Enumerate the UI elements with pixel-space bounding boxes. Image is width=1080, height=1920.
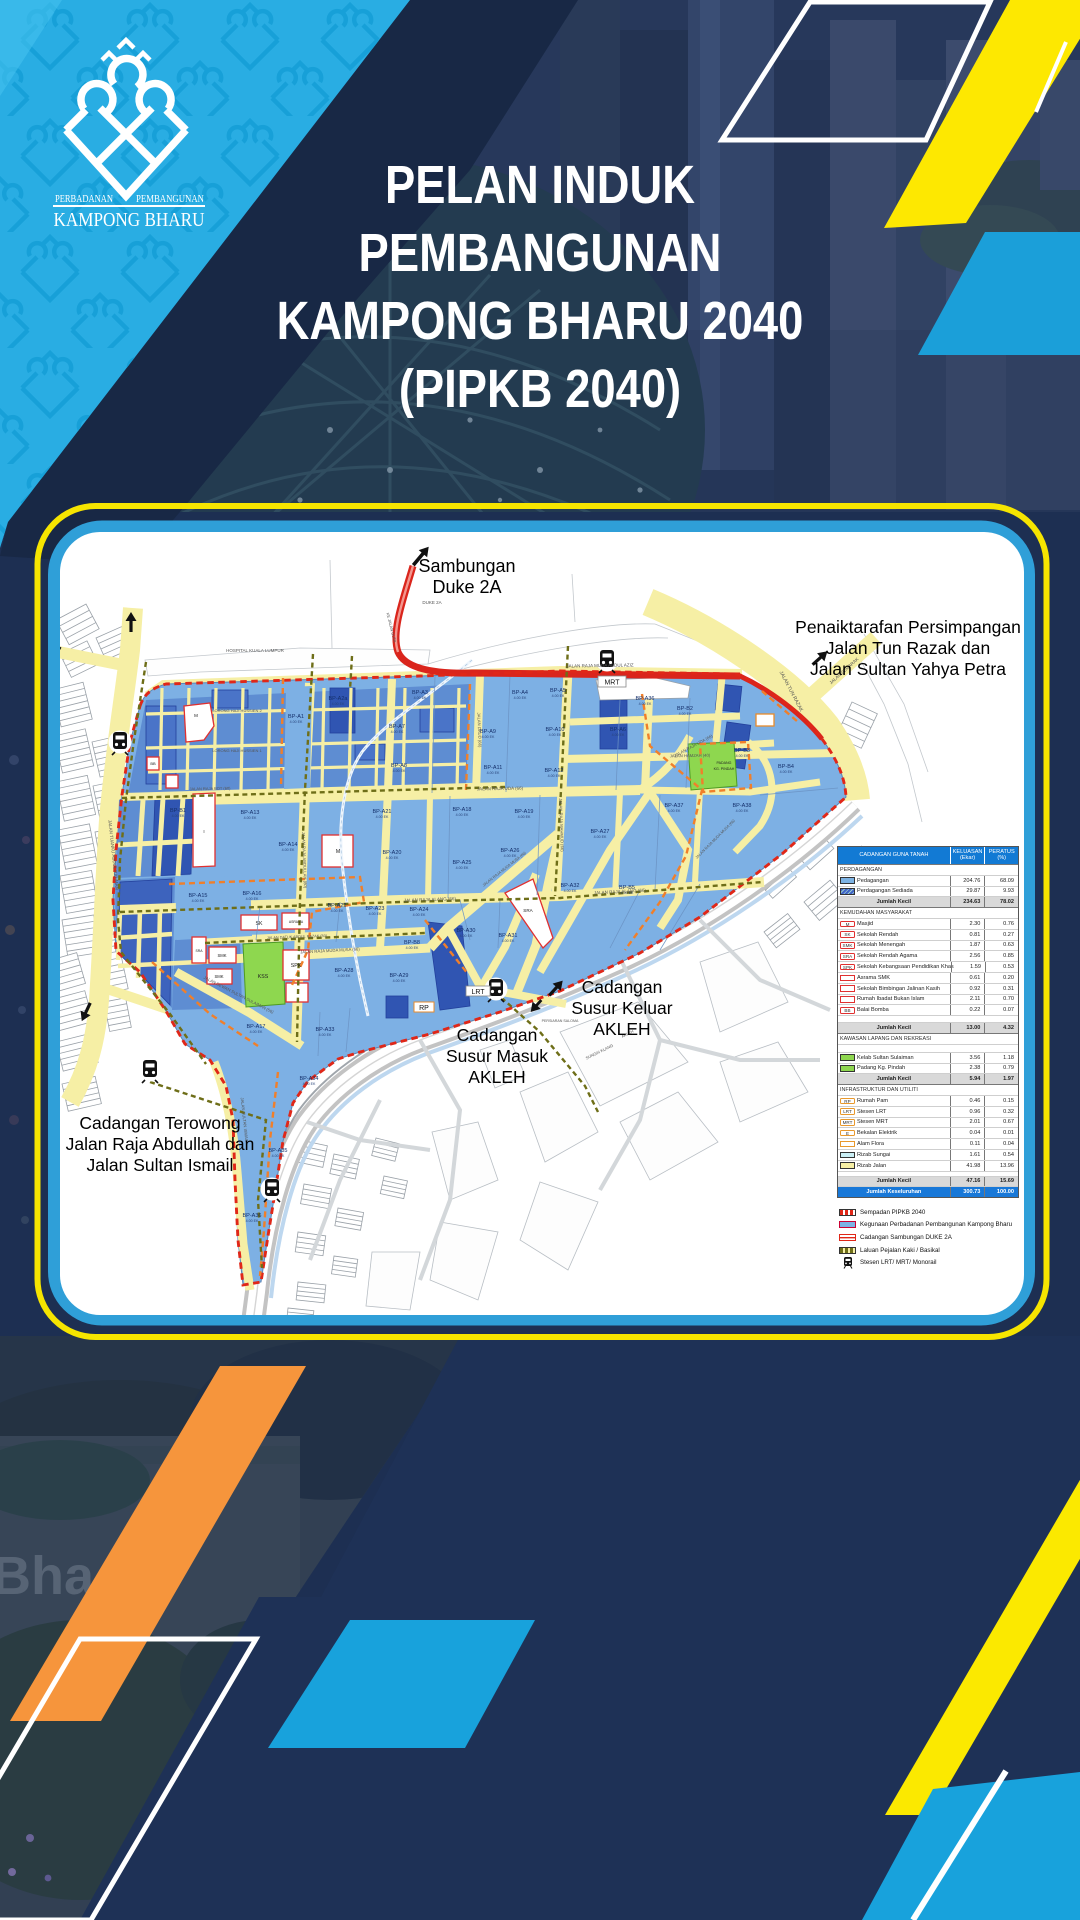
svg-text:4.00 EK: 4.00 EK [780, 770, 793, 774]
svg-text:M: M [194, 713, 198, 718]
svg-text:4.00 EK: 4.00 EK [393, 769, 406, 773]
svg-text:SK: SK [256, 921, 263, 927]
svg-text:4.00 EK: 4.00 EK [246, 897, 259, 901]
svg-text:4.00 EK: 4.00 EK [679, 712, 692, 716]
svg-text:4.00 EK: 4.00 EK [282, 848, 295, 852]
svg-text:JALAN RAJA BOT (60): JALAN RAJA BOT (60) [189, 786, 231, 792]
svg-text:4.00 EK: 4.00 EK [668, 809, 681, 813]
svg-text:4.00 EK: 4.00 EK [549, 733, 562, 737]
svg-text:4.00 EK: 4.00 EK [244, 816, 257, 820]
svg-text:4.00 EK: 4.00 EK [414, 696, 427, 700]
svg-text:LORONG HAJI HUSSIEN 1: LORONG HAJI HUSSIEN 1 [212, 748, 262, 753]
svg-text:4.00 EK: 4.00 EK [406, 946, 419, 950]
svg-text:4.00 EK: 4.00 EK [369, 912, 382, 916]
svg-text:4.00 EK: 4.00 EK [612, 733, 625, 737]
svg-text:4.00 EK: 4.00 EK [303, 1082, 316, 1086]
svg-text:4.00 EK: 4.00 EK [393, 979, 406, 983]
svg-text:4.00 EK: 4.00 EK [192, 899, 205, 903]
svg-text:DUKE 2A: DUKE 2A [422, 600, 441, 605]
svg-text:I: I [203, 829, 204, 834]
svg-text:JALAN HAMZAH (40): JALAN HAMZAH (40) [670, 753, 711, 759]
svg-text:KSS: KSS [258, 974, 269, 980]
svg-text:LORONG HAJI HUSSIEN 2: LORONG HAJI HUSSIEN 2 [212, 708, 262, 713]
svg-text:4.00 EK: 4.00 EK [391, 730, 404, 734]
svg-text:4.00 EK: 4.00 EK [736, 754, 749, 758]
svg-text:M: M [336, 849, 340, 855]
svg-text:4.00 EK: 4.00 EK [456, 813, 469, 817]
svg-text:SRA: SRA [523, 908, 533, 913]
svg-text:SMK: SMK [217, 953, 226, 958]
svg-text:BB: BB [150, 761, 156, 766]
svg-text:4.00 EK: 4.00 EK [460, 934, 473, 938]
svg-text:4.00 EK: 4.00 EK [290, 720, 303, 724]
svg-text:RP: RP [419, 1005, 429, 1012]
svg-text:4.00 EK: 4.00 EK [552, 694, 565, 698]
svg-text:4.00 EK: 4.00 EK [376, 815, 389, 819]
svg-text:4.00 EK: 4.00 EK [456, 866, 469, 870]
svg-text:4.00 EK: 4.00 EK [594, 835, 607, 839]
svg-text:4.00 EK: 4.00 EK [332, 702, 345, 706]
svg-text:4.00 EK: 4.00 EK [331, 909, 344, 913]
svg-text:4.00 EK: 4.00 EK [413, 913, 426, 917]
svg-text:4.00 EK: 4.00 EK [736, 809, 749, 813]
svg-text:SMK: SMK [214, 974, 223, 979]
svg-text:JALAN RAJA UDA (66): JALAN RAJA UDA (66) [477, 786, 524, 792]
svg-text:PADANG: PADANG [717, 761, 732, 765]
svg-text:4.00 EK: 4.00 EK [319, 1033, 332, 1037]
svg-text:ASRAMA: ASRAMA [289, 920, 304, 924]
svg-text:4.00 EK: 4.00 EK [639, 702, 652, 706]
svg-text:4.00 EK: 4.00 EK [250, 1030, 263, 1034]
svg-text:4.00 EK: 4.00 EK [338, 974, 351, 978]
svg-text:SRA: SRA [196, 949, 204, 953]
svg-text:4.00 EK: 4.00 EK [487, 771, 500, 775]
svg-text:4.00 EK: 4.00 EK [482, 735, 495, 739]
svg-text:4.00 EK: 4.00 EK [514, 696, 527, 700]
svg-text:4.00 EK: 4.00 EK [246, 1219, 259, 1223]
svg-text:KG. PINDAH: KG. PINDAH [714, 767, 735, 771]
svg-text:4.00 EK: 4.00 EK [548, 774, 561, 778]
svg-text:4.00 EK: 4.00 EK [564, 889, 577, 893]
svg-text:HOSPITAL KUALA LUMPUR: HOSPITAL KUALA LUMPUR [226, 648, 285, 653]
svg-text:4.00 EK: 4.00 EK [172, 814, 185, 818]
svg-text:SPK: SPK [291, 963, 302, 969]
svg-text:4.00 EK: 4.00 EK [502, 939, 515, 943]
svg-text:4.00 EK: 4.00 EK [386, 856, 399, 860]
svg-text:4.00 EK: 4.00 EK [518, 815, 531, 819]
svg-text:MRT: MRT [604, 680, 620, 687]
